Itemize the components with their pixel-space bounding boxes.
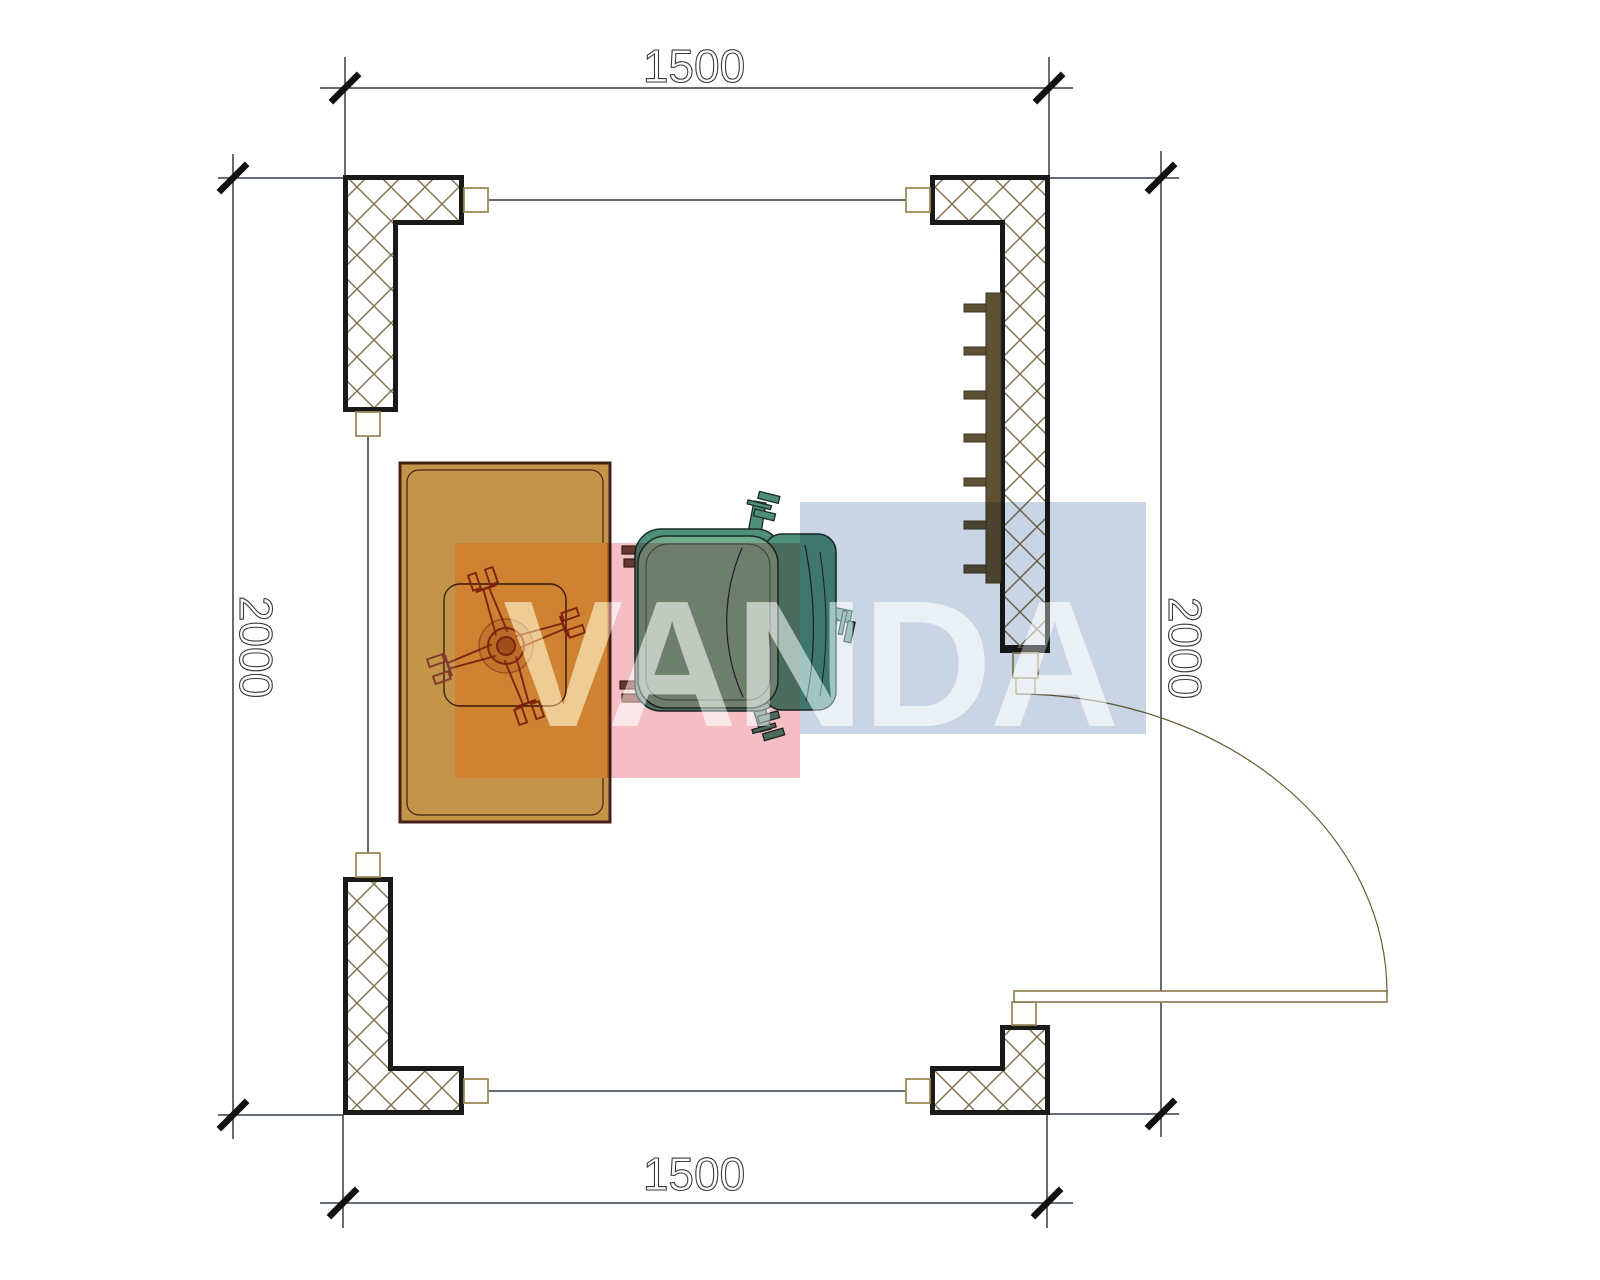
svg-text:1500: 1500 (643, 1148, 745, 1200)
svg-text:2000: 2000 (1159, 597, 1211, 699)
svg-text:VANDA: VANDA (503, 564, 1117, 765)
svg-text:1500: 1500 (643, 40, 745, 92)
svg-text:2000: 2000 (230, 596, 282, 698)
